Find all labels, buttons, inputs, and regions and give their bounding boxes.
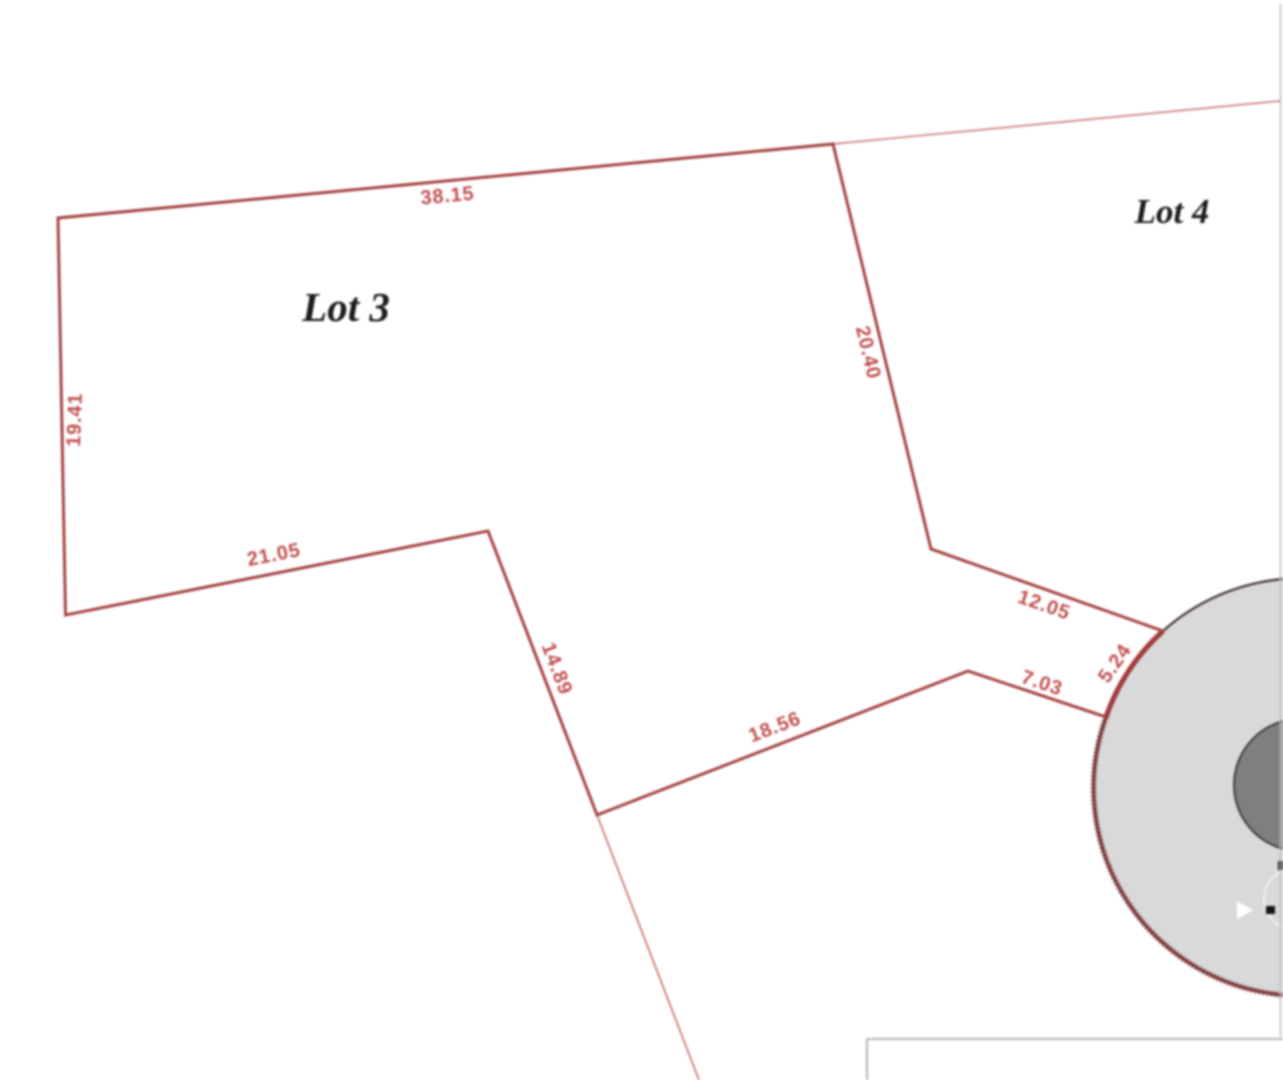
svg-text:Lot 3: Lot 3 (301, 284, 390, 330)
svg-text:19.41: 19.41 (63, 392, 87, 447)
svg-text:Lot 4: Lot 4 (1134, 192, 1210, 231)
